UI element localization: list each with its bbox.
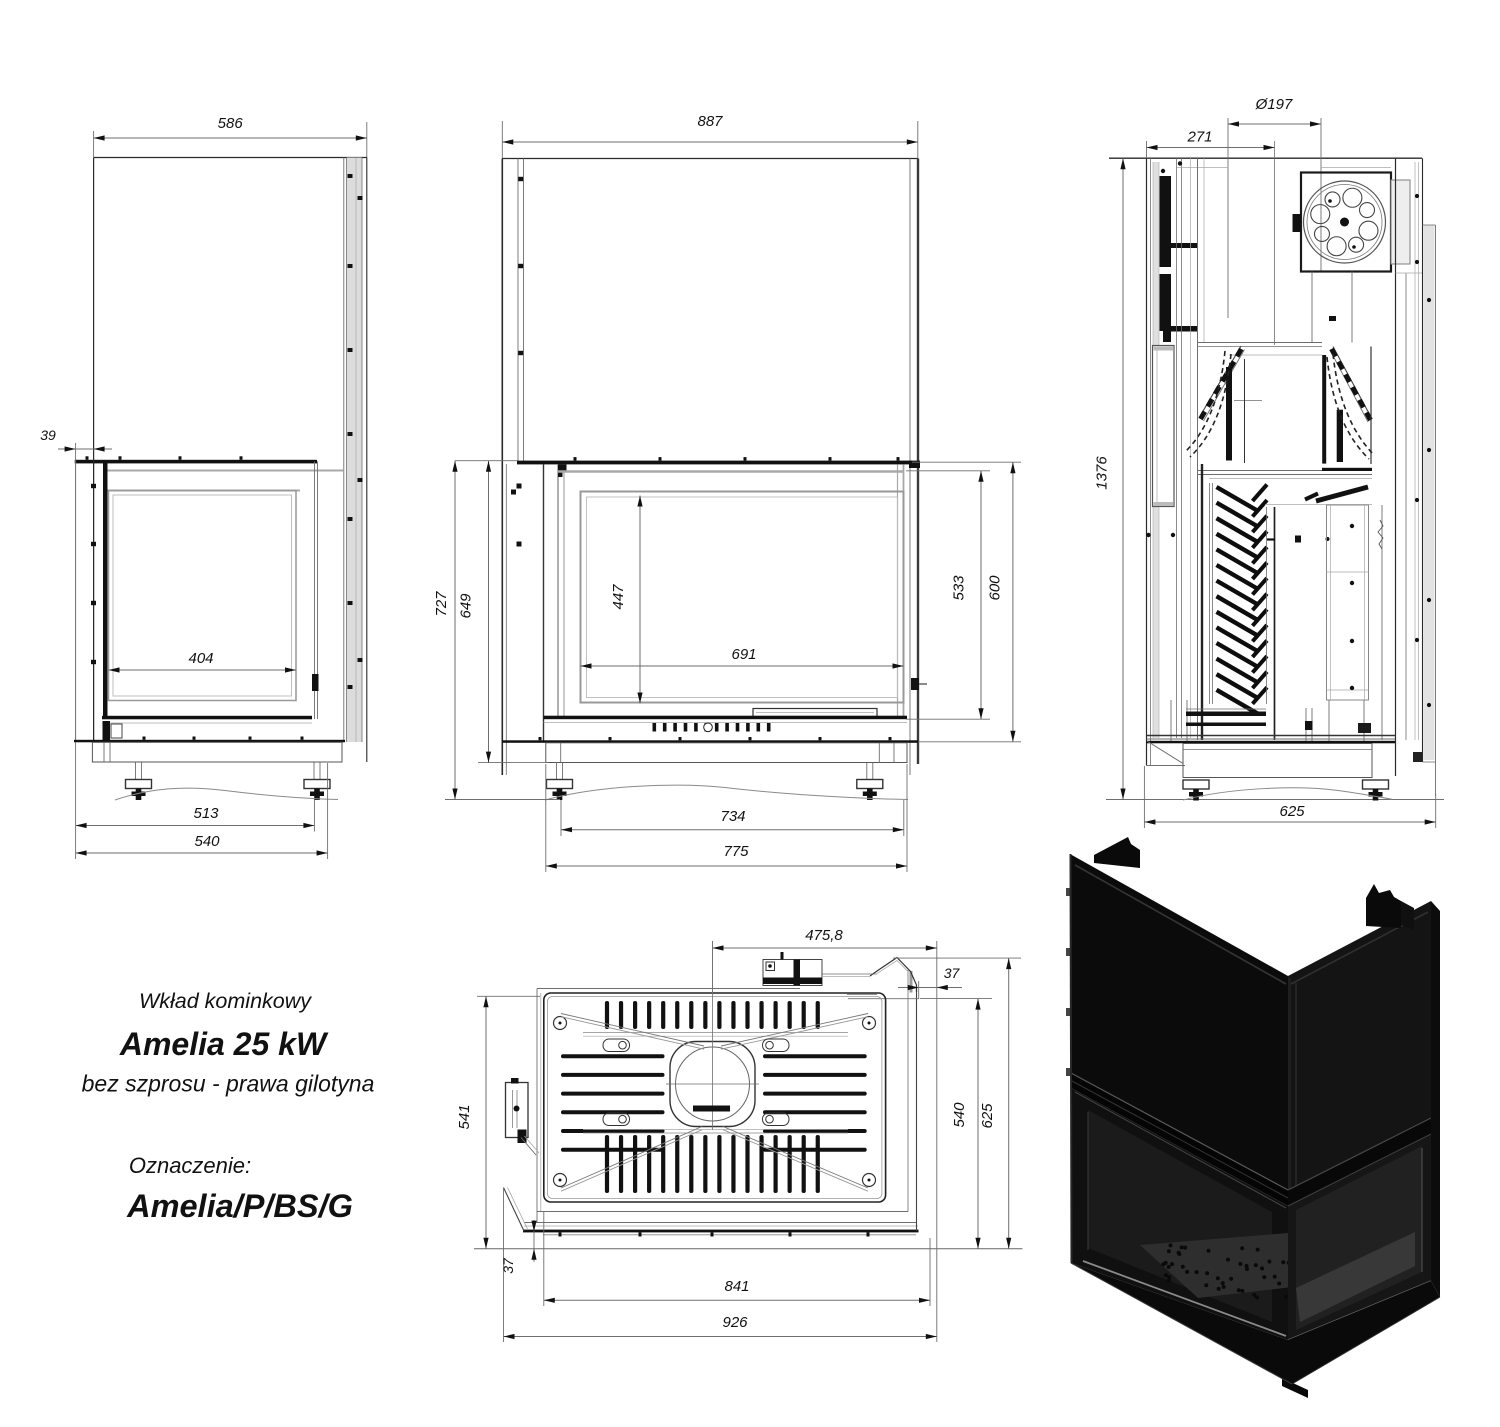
svg-text:533: 533 bbox=[951, 575, 968, 601]
svg-text:Wkład kominkowy: Wkład kominkowy bbox=[139, 989, 312, 1013]
svg-text:841: 841 bbox=[724, 1278, 749, 1295]
svg-text:Oznaczenie:: Oznaczenie: bbox=[129, 1153, 251, 1178]
svg-text:540: 540 bbox=[951, 1102, 968, 1128]
svg-text:bez szprosu - prawa gilotyna: bez szprosu - prawa gilotyna bbox=[82, 1071, 375, 1097]
svg-text:691: 691 bbox=[731, 646, 756, 663]
svg-text:727: 727 bbox=[433, 591, 450, 617]
svg-text:37: 37 bbox=[944, 965, 961, 981]
svg-text:37: 37 bbox=[500, 1257, 516, 1274]
svg-text:39: 39 bbox=[40, 427, 56, 443]
svg-text:775: 775 bbox=[723, 843, 749, 860]
svg-text:887: 887 bbox=[697, 113, 723, 130]
svg-text:Amelia 25 kW: Amelia 25 kW bbox=[119, 1026, 329, 1062]
svg-text:734: 734 bbox=[720, 808, 745, 825]
svg-text:271: 271 bbox=[1186, 129, 1212, 146]
svg-text:475,8: 475,8 bbox=[805, 927, 843, 944]
svg-text:926: 926 bbox=[722, 1314, 748, 1331]
svg-text:625: 625 bbox=[1279, 803, 1305, 820]
svg-text:1376: 1376 bbox=[1094, 456, 1111, 490]
svg-text:404: 404 bbox=[188, 650, 213, 667]
svg-text:Amelia/P/BS/G: Amelia/P/BS/G bbox=[126, 1188, 353, 1224]
svg-text:540: 540 bbox=[194, 833, 220, 850]
svg-text:447: 447 bbox=[610, 584, 627, 610]
svg-text:600: 600 bbox=[987, 575, 1004, 601]
svg-text:586: 586 bbox=[218, 115, 244, 132]
svg-text:541: 541 bbox=[456, 1104, 473, 1129]
svg-text:625: 625 bbox=[979, 1103, 996, 1129]
svg-text:513: 513 bbox=[193, 805, 219, 822]
svg-text:649: 649 bbox=[458, 593, 475, 619]
svg-text:Ø197: Ø197 bbox=[1255, 96, 1293, 113]
